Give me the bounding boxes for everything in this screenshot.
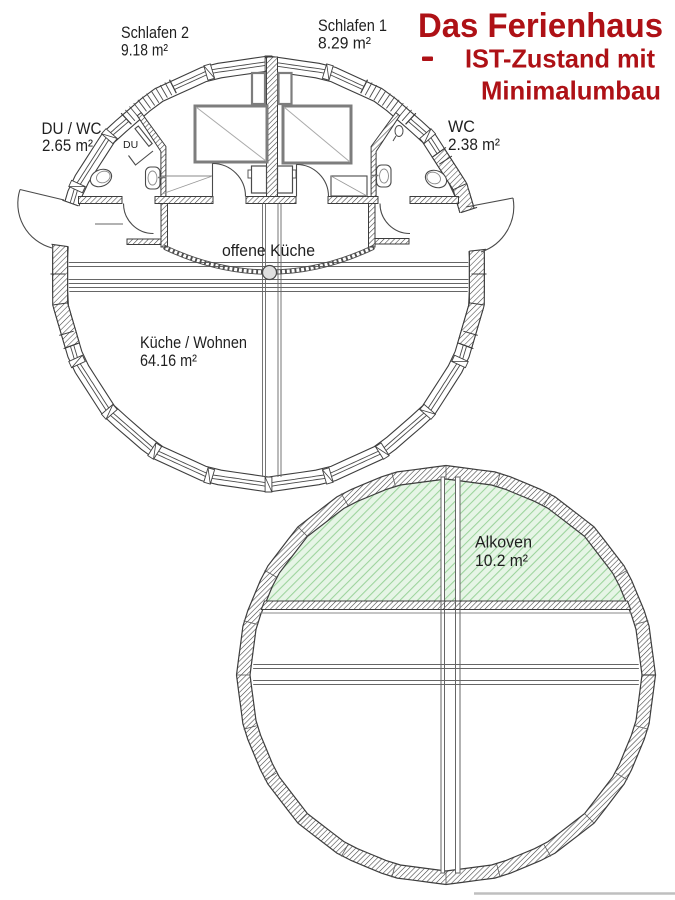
svg-text:Schlafen 1: Schlafen 1 (318, 16, 387, 35)
svg-text:IST-Zustand mit: IST-Zustand mit (465, 44, 655, 74)
svg-text:2.65 m²: 2.65 m² (42, 136, 93, 155)
svg-text:64.16 m²: 64.16 m² (140, 351, 197, 370)
svg-text:Das Ferienhaus: Das Ferienhaus (418, 7, 663, 45)
svg-text:8.29 m²: 8.29 m² (318, 34, 371, 53)
svg-text:WC: WC (448, 117, 475, 136)
svg-text:Alkoven: Alkoven (475, 533, 532, 552)
svg-text:2.38 m²: 2.38 m² (448, 135, 500, 154)
svg-text:DU: DU (123, 139, 138, 151)
svg-text:10.2 m²: 10.2 m² (475, 551, 528, 570)
svg-text:offene Küche: offene Küche (222, 241, 315, 260)
svg-text:Schlafen 2: Schlafen 2 (121, 23, 189, 42)
svg-text:9.18 m²: 9.18 m² (121, 41, 168, 60)
svg-text:Minimalumbau: Minimalumbau (481, 76, 661, 106)
svg-text:Küche / Wohnen: Küche / Wohnen (140, 333, 247, 352)
